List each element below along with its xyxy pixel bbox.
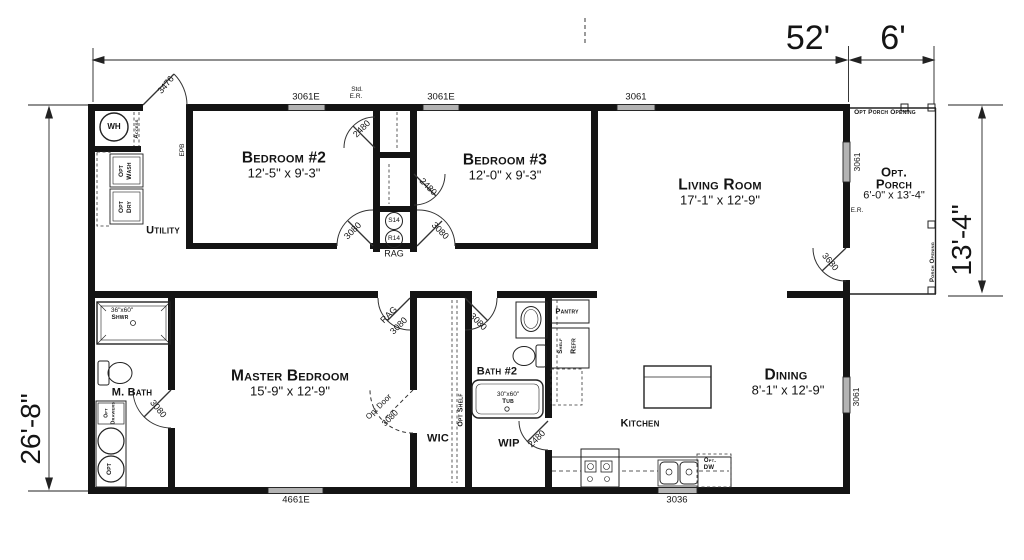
window-label-3061-dining: 3061 [852,388,861,407]
room-size-bedroom2: 12'-5" x 9'-3" [248,167,321,180]
room-label-kitchen: Kitchen [620,419,659,430]
room-label-wic: WIC [427,434,449,445]
annotation-opt-porch-opening: Opt Porch Opening [854,110,916,117]
room-label-bedroom2: Bedroom #2 [242,150,326,166]
floorplan-drawing [0,0,1024,560]
opt-drawers-label-1: Opt [105,408,110,418]
door-swings [133,74,846,450]
floorplan-page: 52' 6' 26'-8" 13'-4" 3061E 3061E 3061 30… [0,0,1024,560]
opt-wash-label-1: Opt [119,165,126,177]
opt-drawers-label-2: Drawers [112,402,117,425]
right-height-dimension: 13'-4" [948,204,976,275]
epb-label: EPB [180,143,187,156]
rag-hall-label: RAG [384,250,404,259]
annotation-er-porch: E.R. [851,208,864,215]
room-label-dining: Dining [765,367,808,383]
window-label-3061-porch: 3061 [853,153,862,172]
kitchen-island [644,366,711,408]
dimension-lines [28,18,1003,491]
room-size-bedroom3: 12'-0" x 9'-3" [469,169,542,182]
access-label: Access [134,119,140,138]
porch-width-dimension: 6' [880,21,905,55]
room-label-bedroom3: Bedroom #3 [463,152,547,168]
water-heater-label: WH [107,123,120,131]
room-label-mbath: M. Bath [112,388,152,399]
room-size-living: 17'-1" x 12'-9" [680,194,760,207]
annotation-er: E.R. [350,94,363,101]
opt-sink-label: Opt [107,463,114,475]
annotation-porch-opening: Porch Opening [930,242,936,282]
r14-label: R14 [388,236,400,243]
opt-dw-label-1: Opt. [704,458,716,464]
opt-shelf-label: Opt Shelf [458,393,465,426]
shower [97,302,170,344]
room-size-master: 15'-9" x 12'-9" [250,385,330,398]
shelf-label: Shelf [558,338,564,353]
pantry-label: Pantry [555,307,578,315]
opt-dry-label-2: Dry [127,201,134,213]
entry-door-opening [143,103,187,112]
window-label-3061-top: 3061 [625,92,646,102]
opt-dw-label-2: DW [704,465,714,471]
room-size-porch: 6'-0" x 13'-4" [863,191,925,202]
window-label-3036: 3036 [666,495,687,505]
tub-label: Tub [502,399,514,406]
room-label-utility: Utility [146,226,180,237]
room-size-dining: 8'-1" x 12'-9" [752,384,825,397]
window-label-3061e-2: 3061E [427,92,454,102]
shower-label: Shwr [111,315,128,322]
bath2-fixtures [513,302,547,367]
mbath-toilet [98,361,132,385]
range-stove [581,449,619,487]
room-label-bath2: Bath #2 [477,367,517,378]
opt-wash-label-2: Wash [127,162,134,180]
w16x30-label: W16X30 [93,148,114,154]
window-label-4661e: 4661E [282,495,309,505]
left-height-dimension: 26'-8" [17,393,45,464]
refr-label: Refr [571,338,578,354]
opt-dry-label-1: Opt [119,201,126,213]
overall-width-dimension: 52' [786,21,830,55]
window-label-3061e-1: 3061E [292,92,319,102]
kitchen-sink [658,460,698,486]
room-label-wip: WIP [498,439,519,450]
windows [268,105,850,494]
room-label-master: Master Bedroom [231,368,349,384]
room-label-living: Living Room [678,177,761,193]
s14-label: S14 [388,218,400,225]
